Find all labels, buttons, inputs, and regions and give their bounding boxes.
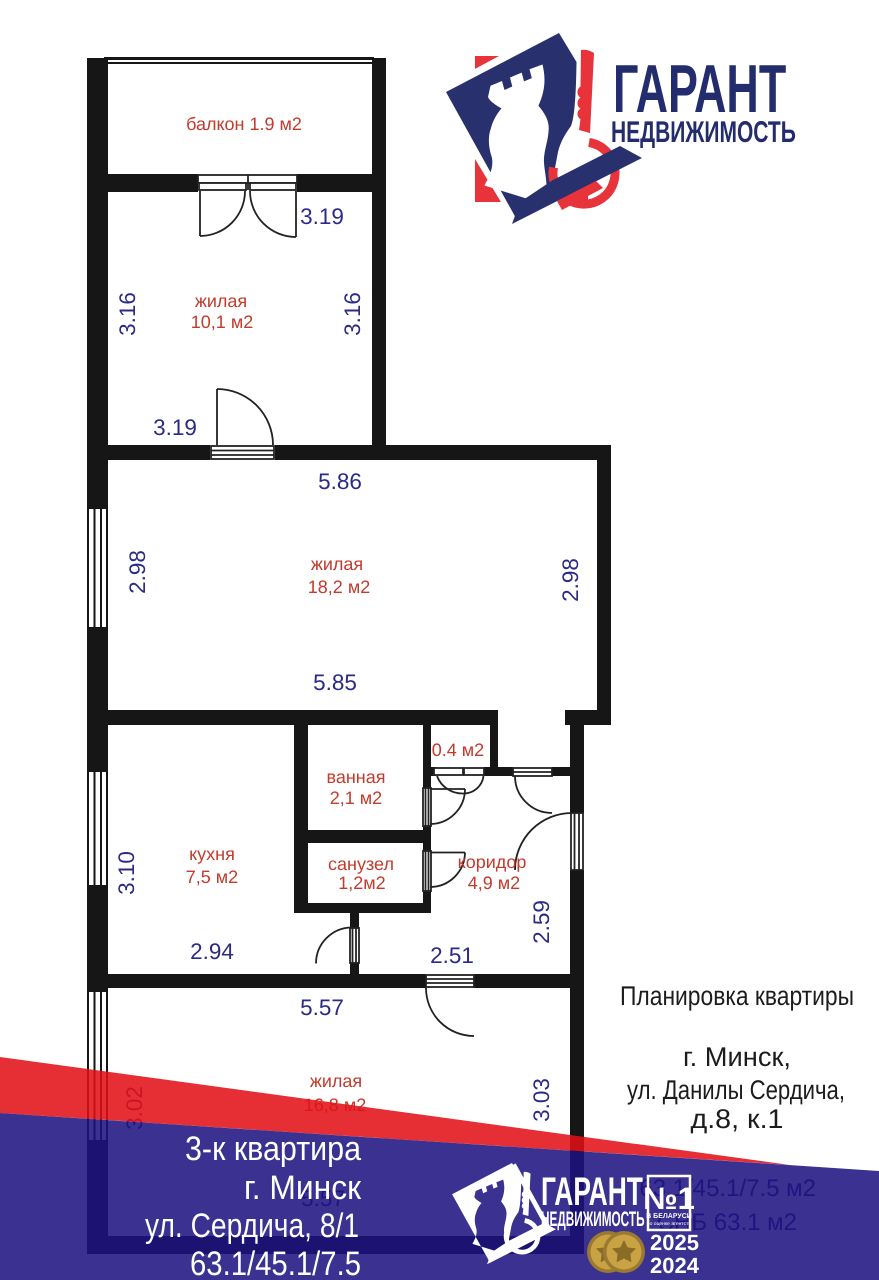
svg-text:10,1 м2: 10,1 м2 <box>191 312 253 332</box>
svg-text:1,2м2: 1,2м2 <box>338 873 385 893</box>
svg-text:№1: №1 <box>643 1181 695 1216</box>
svg-text:5.57: 5.57 <box>300 995 344 1020</box>
svg-text:санузел: санузел <box>328 854 394 874</box>
svg-text:НЕДВИЖИМОСТЬ: НЕДВИЖИМОСТЬ <box>541 1208 645 1231</box>
svg-text:18,2 м2: 18,2 м2 <box>308 577 370 597</box>
svg-text:2,1 м2: 2,1 м2 <box>330 788 382 808</box>
svg-text:7,5 м2: 7,5 м2 <box>186 867 238 887</box>
svg-text:ул. Сердича, 8/1: ул. Сердича, 8/1 <box>145 1207 359 1245</box>
svg-text:г. Минск: г. Минск <box>244 1169 362 1207</box>
svg-text:2.98: 2.98 <box>558 558 583 602</box>
svg-text:по оценке агентств: по оценке агентств <box>647 1221 691 1227</box>
svg-text:коридор: коридор <box>458 852 527 872</box>
svg-text:Планировка квартиры: Планировка квартиры <box>620 981 854 1011</box>
svg-text:3.16: 3.16 <box>115 292 140 336</box>
svg-text:г. Минск,: г. Минск, <box>683 1042 791 1072</box>
svg-text:2.51: 2.51 <box>430 943 474 968</box>
svg-text:кухня: кухня <box>189 844 235 864</box>
svg-text:д.8, к.1: д.8, к.1 <box>691 1104 784 1134</box>
svg-text:4,9 м2: 4,9 м2 <box>468 873 520 893</box>
svg-text:балкон 1.9 м2: балкон 1.9 м2 <box>186 114 302 134</box>
svg-text:жилая: жилая <box>311 554 363 574</box>
svg-text:2.59: 2.59 <box>529 900 554 944</box>
svg-text:2.94: 2.94 <box>190 939 234 964</box>
svg-text:63.1/45.1/7.5: 63.1/45.1/7.5 <box>190 1245 361 1280</box>
svg-text:жилая: жилая <box>195 291 247 311</box>
svg-text:НЕДВИЖИМОСТЬ: НЕДВИЖИМОСТЬ <box>611 116 796 149</box>
svg-text:3-к квартира: 3-к квартира <box>185 1130 361 1168</box>
svg-text:В БЕЛАРУСИ: В БЕЛАРУСИ <box>646 1213 692 1220</box>
svg-text:5.85: 5.85 <box>313 670 357 695</box>
svg-text:2024: 2024 <box>650 1253 700 1278</box>
svg-text:0.4 м2: 0.4 м2 <box>432 740 484 760</box>
svg-text:3.19: 3.19 <box>153 415 197 440</box>
svg-text:2.98: 2.98 <box>125 550 150 594</box>
svg-text:жилая: жилая <box>310 1071 362 1091</box>
svg-text:3.10: 3.10 <box>114 851 139 895</box>
svg-text:3.03: 3.03 <box>529 1078 554 1122</box>
svg-text:3.19: 3.19 <box>300 204 344 229</box>
svg-text:2025: 2025 <box>650 1230 699 1255</box>
svg-text:ул. Данилы Сердича,: ул. Данилы Сердича, <box>627 1075 845 1105</box>
svg-text:3.16: 3.16 <box>340 292 365 336</box>
svg-text:5.86: 5.86 <box>318 469 362 494</box>
svg-text:ванная: ванная <box>326 767 385 787</box>
